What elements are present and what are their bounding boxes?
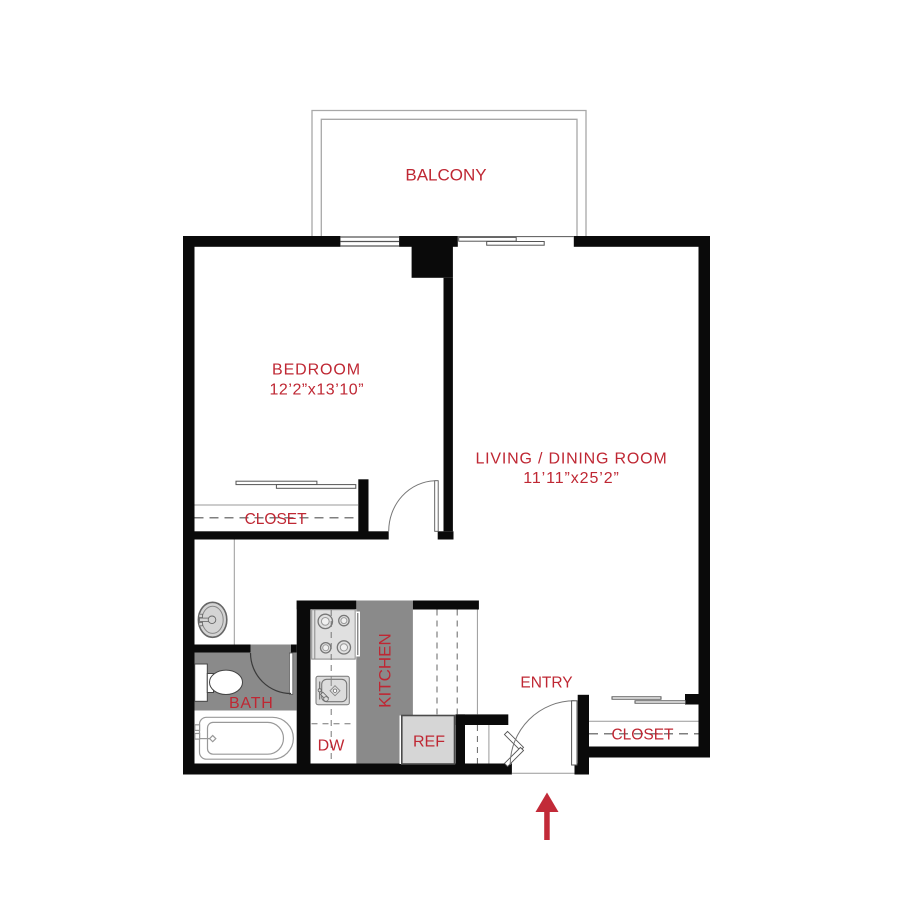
svg-text:ENTRY: ENTRY [520,675,572,692]
svg-text:LIVING / DINING ROOM: LIVING / DINING ROOM [475,451,667,468]
svg-text:CLOSET: CLOSET [611,726,674,743]
svg-text:DW: DW [318,738,346,755]
svg-text:12’2”x13’10”: 12’2”x13’10” [269,382,364,399]
svg-text:11’11”x25’2”: 11’11”x25’2” [523,470,619,487]
svg-text:KITCHEN: KITCHEN [376,633,395,708]
svg-text:BALCONY: BALCONY [405,166,486,185]
svg-text:REF: REF [413,734,445,751]
svg-text:BEDROOM: BEDROOM [272,362,361,379]
svg-text:CLOSET: CLOSET [245,511,308,528]
svg-text:BATH: BATH [229,695,274,712]
